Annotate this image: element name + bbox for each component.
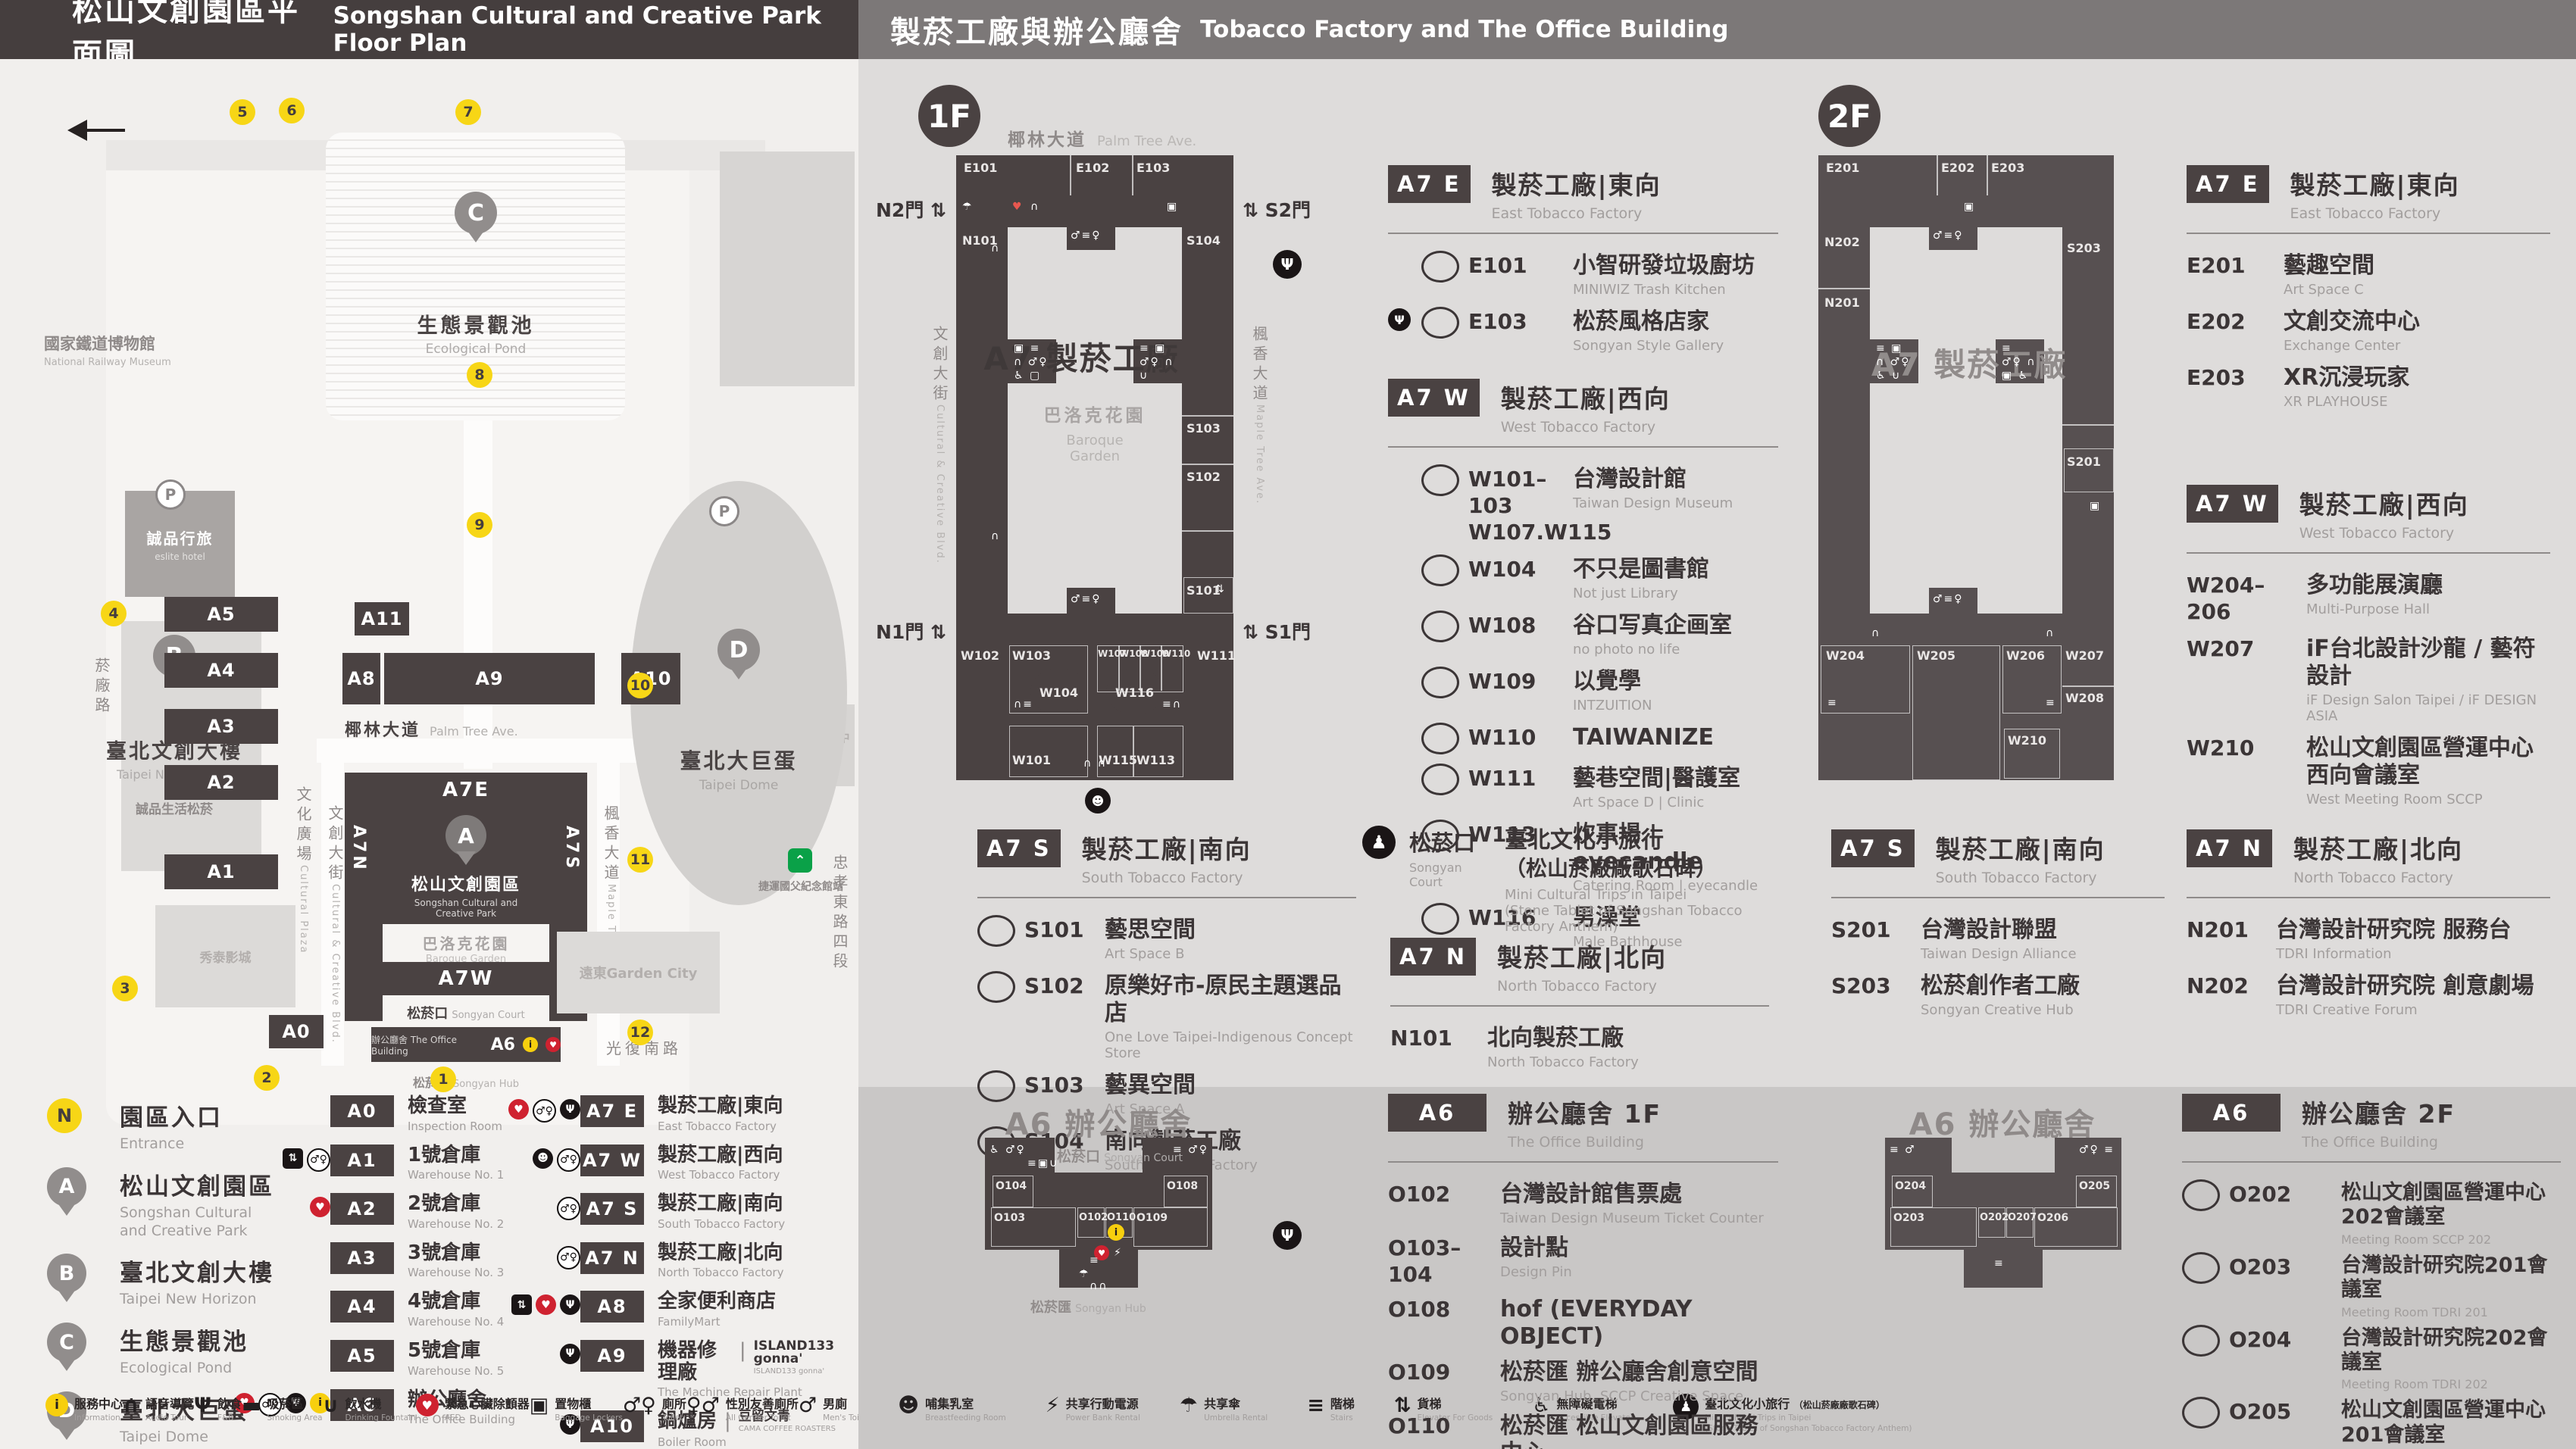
railway-museum-label: 國家鐵道博物館 National Railway Museum [44,332,171,368]
room-label: O104 [996,1180,1027,1192]
garden-city-block: 遠東Garden City [557,932,720,1013]
map-block-a0: A0 [269,1015,324,1048]
room-label: W113 [1136,753,1175,767]
audio-icon: ∩ [1030,201,1039,213]
entrance-9: 9 [467,512,492,538]
dome-pin-d: D [717,629,760,671]
room-label: O206 [2037,1212,2068,1224]
powerbank-icon: ⚡ [1114,1247,1123,1259]
locker-icon: ▣ [530,1394,549,1417]
fnb-icon: Ψ [1388,308,1411,331]
map-block-a9: A9 [384,653,595,704]
room-row: W204–206 多功能展演廳Multi-Purpose Hall [2187,572,2550,625]
legend-row: ♂♀ A7 N 製菸工廠|北向 North Tobacco Factory [491,1242,855,1280]
room-row: E201 藝趣空間Art Space C [2187,252,2550,298]
entrance-10: 10 [627,673,653,698]
nursing-icon: ☻ [533,1148,553,1169]
legend-marker: A [47,1167,86,1207]
palm-ave-label: 椰林大道 Palm Tree Ave. [345,717,518,741]
map-a7s-label: A7S [562,826,581,871]
facility-item: ▣ 置物櫃Baggage Lockers [530,1394,623,1422]
toilet-icon: ♂♀ [533,1099,556,1123]
room-label: W210 [2008,733,2046,748]
room-label: O202 [1980,1212,2009,1223]
info-icon: i [523,1037,538,1052]
toilet-icon: ♂♀ [557,1197,580,1220]
legend-row: Ψ♂♀♥ A7 E 製菸工廠|東向 East Tobacco Factory [491,1095,855,1133]
f1-street-top: 椰林大道 Palm Tree Ave. [1008,125,1196,151]
facility-item: ♥ 緊急心臟除顫器AED [416,1394,530,1422]
room-row: W101–103W107.W115 台灣設計館Taiwan Design Mus… [1421,466,1778,545]
room-label: E102 [1076,161,1109,175]
facility-item: ♂♀ 廁所Toilet [623,1394,686,1422]
map-block-a4: A4 [164,653,278,688]
aed-icon: ♥ [546,1037,561,1052]
room-label: S201 [2067,454,2101,469]
room-label: O110 [1107,1212,1136,1223]
section-a7e-1f: A7 E 製菸工廠|東向East Tobacco Factory E101 小智… [1388,165,1778,364]
room-label: N202 [1824,235,1860,249]
room-row: W108 谷口写真企画室no photo no life [1421,612,1778,657]
room-label: W111 [1197,648,1236,663]
fnb-icon: Ψ [560,1344,580,1364]
room-row: N101 北向製菸工廠North Tobacco Factory [1390,1025,1769,1070]
room-row: W210 松山文創園區營運中心西向會議室West Meeting Room SC… [2187,735,2550,807]
room-label: O205 [2079,1180,2110,1192]
fnb-icon: Ψ [1273,1221,1302,1250]
map-block-a1: A1 [164,854,278,889]
elevator-icon: ⇅ [1215,583,1226,595]
entrance-3: 3 [112,976,138,1001]
floor-badge-2f: 2F [1818,85,1880,147]
f1-street-right: 楓香大道Maple Tree Ave. [1249,326,1271,504]
room-row: W110 TAIWANIZE [1421,724,1778,754]
locker-icon: ▣ [2090,500,2101,512]
aed-icon: ♥ [310,1197,330,1217]
map-block-a2: A2 [164,765,278,800]
baroque-garden-label: 巴洛克花園 Baroque Garden [371,932,561,965]
a6-1f-court-label: 松菸口 Songyan Court [1057,1145,1183,1166]
room-row: O204 台灣設計研究院202會議室Meeting Room TDRI 202 [2182,1326,2561,1392]
room-row: E202 文創交流中心Exchange Center [2187,308,2550,354]
room-row: W104 不只是圖書館Not just Library [1421,556,1778,601]
room-label: W102 [961,648,999,663]
parking-icon: P [709,496,739,526]
legend-row: Ψ A9 機器修理廠 | ISLAND133 gonna'ISLAND133 g… [491,1340,855,1399]
entrance-6: 6 [279,98,305,123]
room-label: E203 [1991,161,2024,175]
room-row: O109 松菸匯 辦公廳舍創意空間Songyan Hub, SCCP Creat… [1388,1359,1778,1404]
floor-badge-1f: 1F [918,85,980,147]
umbrella-icon: ☂ [1079,1268,1090,1280]
f1-street-left: 文創大街Cultural & Creative Blvd. [929,326,951,564]
facility-item: ∩ 語音導覽Audio Tour [123,1394,194,1422]
dome-label: 臺北大巨蛋 Taipei Dome [640,745,837,793]
room-label: E202 [1941,161,1974,175]
info-icon: i [1108,1224,1124,1241]
audio-icon: ∩ [123,1394,139,1417]
umbrella-icon: ☂ [962,201,974,213]
room-label: O109 [1136,1212,1168,1224]
legend-marker: B [47,1254,86,1293]
map-songyan-court-label: 松菸口 Songyan Court [371,1003,561,1023]
a6-1f-hub-label: 松菸匯 Songyan Hub [1030,1297,1146,1316]
walk-icon: ♟ [1362,826,1396,859]
room-row: O203 台灣設計研究院201會議室Meeting Room TDRI 201 [2182,1254,2561,1319]
entrance-11: 11 [627,847,653,873]
room-row: W207 iF台北設計沙龍 / 藝符設計iF Design Salon Taip… [2187,635,2550,724]
room-label: W208 [2065,691,2104,705]
room-row: O102 台灣設計館售票處Taiwan Design Museum Ticket… [1388,1181,1778,1226]
room-row: S203 松菸創作者工廠Songyan Creative Hub [1831,973,2165,1018]
metro-logo-icon: ⌃ [788,848,812,873]
street-yanchang-rd: 菸廠路 [91,657,113,717]
facility-item: ▬ 吸菸區Smoking Area [242,1394,323,1422]
room-row: Ψ E103 松菸風格店家Songyan Style Gallery [1421,308,1778,354]
men-icon: ♂ [799,1394,817,1417]
header-left: 松山文創園區平面圖 Songshan Cultural and Creative… [0,0,858,59]
door-s1: ⇅ S1門 [1243,617,1311,645]
toilet-icons: ♂≡♀ [1933,593,1964,605]
toilet-icons: ♂≡♀ [1933,230,1964,242]
audio-icon: ∩ [1871,627,1880,639]
room-label: S104 [1186,233,1221,248]
room-label: E101 [964,161,997,175]
facility-item: ☻ 哺集乳室 Breastfeeding Room [898,1394,1006,1422]
nursing-icon: ☻ [898,1394,919,1417]
section-title-en: Tobacco Factory and The Office Building [1200,16,1729,43]
entrance-2: 2 [254,1065,280,1091]
facility-strip-left: i 服務中心Information ∩ 語音導覽Audio Tour Ψ 飲食F… [45,1394,850,1422]
fnb-icon: Ψ [560,1099,580,1120]
room-label: W205 [1917,648,1955,663]
door-s2: ⇅ S2門 [1243,195,1311,223]
info-icon: i [45,1394,68,1416]
nursing-icon: ☻ [1085,788,1111,814]
legend-marker: N [47,1098,82,1133]
entrance-5: 5 [230,99,255,125]
eslite-hotel-block: 誠品行旅 eslite hotel [125,491,235,597]
mrt-station-label: 捷運國父紀念館站 [729,879,873,894]
legend-row: Ψ♥⇅ A8 全家便利商店 FamilyMart [491,1291,855,1329]
street-zhongxiao-rd: 忠孝東路四段 [829,854,851,973]
entrance-7: 7 [455,99,481,125]
room-row: W111 藝巷空間|醫護室Art Space D | Clinic [1421,765,1778,810]
section-a6-2f: A6 辦公廳舍 2FThe Office Building O202 松山文創園… [2182,1094,2561,1449]
audio-icon: ∩ [991,530,1000,542]
room-row: W109 以覺學INTZUITION [1421,668,1778,714]
room-label: W104 [1039,685,1078,700]
section-a7w-2f: A7 W 製菸工廠|西向West Tobacco Factory W204–20… [2187,485,2550,818]
room-label: O103 [994,1212,1025,1224]
facility-item: ≡ 階梯 Stairs [1307,1394,1355,1422]
toilet-icon: ♂♀ [623,1394,656,1417]
legend-row: ♂♀☻ A7 W 製菸工廠|西向 West Tobacco Factory [491,1145,855,1182]
room-label: W103 [1012,648,1051,663]
entrance-12: 12 [627,1020,653,1045]
aed-icon: ♥ [1012,201,1024,213]
room-row: S201 台灣設計聯盟Taiwan Design Alliance [1831,917,2165,962]
f1-west-wing [956,614,1233,780]
toilet-icon: ♂♀ [307,1148,330,1172]
room-label: N201 [1824,295,1860,310]
room-label: O203 [1893,1212,1924,1224]
room-label: W207 [2065,648,2104,663]
map-block-a8: A8 [342,653,380,704]
drink-icon: ∪ [323,1394,339,1417]
park-pin-a: A [445,815,486,856]
locker-icon: ▣ [1167,201,1178,213]
map-a7e-label: A7E [442,779,489,801]
room-row: O110 松菸匯 松山文創園區服務中心Songyan Hub, SCCP Inf… [1388,1413,1778,1449]
room-label: O102 [1079,1212,1108,1223]
fnb-icon: Ψ [1273,250,1302,279]
locker-icon: ▣ [1964,201,1975,213]
facility-item: ♀♂ 性別友善廁所All Gender Toilet [686,1394,799,1422]
room-label: S102 [1186,470,1221,484]
park-map-panel: 國家鐵道博物館 National Railway Museum C 生態景觀池 … [0,59,858,1449]
cinema-block: 秀泰影城 [155,905,295,1007]
section-a7n-1f: A7 N 製菸工廠|北向North Tobacco Factory N101 北… [1390,938,1769,1081]
street-cultural-plaza: 文化廣場Cultural Plaza [292,786,314,954]
room-label: W116 [1115,685,1154,700]
elevator-icon: ⇅ [283,1148,303,1169]
room-label: S203 [2067,241,2101,255]
parking-icon: P [155,479,186,510]
fnb-icon: Ψ [194,1394,211,1417]
room-row: E203 XR沉浸玩家XR PLAYHOUSE [2187,364,2550,410]
entrance-4: 4 [101,601,127,626]
room-label: O207 [2008,1212,2037,1223]
room-label: E201 [1826,161,1859,175]
floor-plan-poster: 松山文創園區平面圖 Songshan Cultural and Creative… [0,0,2576,1449]
north-arrow-icon [57,120,87,141]
map-songyan-hub-label: 松菸匯 Songyan Hub [371,1073,561,1091]
section-a6-1f: A6 辦公廳舍 1FThe Office Building O102 台灣設計館… [1388,1094,1778,1449]
section-title-zh: 製菸工廠與辦公廳舍 [890,8,1183,52]
pond-pin-c: C [455,192,497,234]
room-label: W101 [1012,753,1051,767]
map-a7w-bar: A7W [383,962,549,995]
map-block-a5: A5 [164,597,278,632]
smoking-icon: ▬ [242,1394,261,1417]
room-label: W110 [1161,648,1190,659]
page-title-en: Songshan Cultural and Creative Park Floo… [333,2,858,57]
facility-item: ☂ 共享傘 Umbrella Rental [1180,1394,1268,1422]
park-pin-label: 松山文創園區 Songshan Cultural and Creative Pa… [352,871,580,919]
section-a7e-2f: A7 E 製菸工廠|東向East Tobacco Factory E201 藝趣… [2187,165,2550,420]
entrance-1: 1 [430,1066,456,1092]
pond-label: 生態景觀池 Ecological Pond [362,309,589,357]
stairs-icon: ≡ [1307,1394,1324,1417]
door-n1: N1門 ⇅ [876,617,946,645]
audio-icon: ∩ [991,242,1000,255]
room-label: E103 [1136,161,1170,175]
allgender-icon: ♀♂ [686,1394,720,1417]
map-a6-bar: 辦公廳舍 The Office Building A6 i ♥ [371,1027,561,1062]
room-row: S101 藝思空間Art Space B [977,917,1356,962]
facility-item: Ψ 飲食F&B [194,1394,242,1422]
room-label: O204 [1895,1180,1926,1192]
legend-marker: C [47,1323,86,1362]
toilet-icon: ♂♀ [557,1246,580,1269]
map-block-a3: A3 [164,709,278,744]
powerbank-icon: ⚡ [1046,1394,1060,1417]
songyan-court-block: ♟ 松菸口 Songyan Court 臺北文化小旅行 （松山菸廠廠歌石碑） M… [1362,826,1787,935]
room-row: N202 台灣設計研究院 創意劇場TDRI Creative Forum [2187,973,2550,1018]
aed-icon: ♥ [536,1294,556,1315]
toilet-icons: ♂≡♀ [1071,230,1102,242]
audio-icon: ∩ [2046,627,2055,639]
section-a7n-2f: A7 N 製菸工廠|北向North Tobacco Factory N201 台… [2187,829,2550,1029]
room-row: O202 松山文創園區營運中心202會議室Meeting Room SCCP 2… [2182,1181,2561,1247]
legend-row: ♂♀ A7 S 製菸工廠|南向 South Tobacco Factory [491,1193,855,1231]
street-cc-blvd: 文創大街Cultural & Creative Blvd. [324,805,346,1044]
room-row: N201 台灣設計研究院 服務台TDRI Information [2187,917,2550,962]
room-label: S103 [1186,421,1221,436]
room-row: O103–104 設計點Design Pin [1388,1235,1778,1288]
room-row: O108 hof (EVERYDAY OBJECT) [1388,1296,1778,1351]
room-label: W206 [2006,648,2045,663]
facility-item: ⚡ 共享行動電源 Power Bank Rental [1046,1394,1140,1422]
room-row: E101 小智研發垃圾廚坊MINIWIZ Trash Kitchen [1421,252,1778,298]
entrance-8: 8 [467,362,492,388]
aed-icon: ♥ [508,1099,529,1120]
room-row: O205 松山文創園區營運中心201會議室Meeting Room SCCP 2… [2182,1398,2561,1449]
aed-icon: ♥ [416,1394,439,1416]
fnb-icon: Ψ [560,1294,580,1315]
toilet-icons: ♂≡♀ [1071,593,1102,605]
umbrella-icon: ☂ [1180,1394,1198,1417]
facility-item: i 服務中心Information [45,1394,123,1422]
header-right: 製菸工廠與辦公廳舍 Tobacco Factory and The Office… [858,0,2576,59]
facility-item: ∪ 飲水機Drinking Fountain [323,1394,416,1422]
room-label: O108 [1167,1180,1198,1192]
door-n2: N2門 ⇅ [876,195,946,223]
map-a7n-label: A7N [349,825,368,873]
room-label: W204 [1826,648,1865,663]
room-row: S102 原樂好市-原民主題選品店One Love Taipei-Indigen… [977,973,1356,1061]
section-a7s-2f: A7 S 製菸工廠|南向South Tobacco Factory S201 台… [1831,829,2165,1029]
elevator-icon: ⇅ [511,1294,532,1315]
toilet-icon: ♂♀ [557,1148,580,1172]
map-block-a11: A11 [355,602,409,635]
